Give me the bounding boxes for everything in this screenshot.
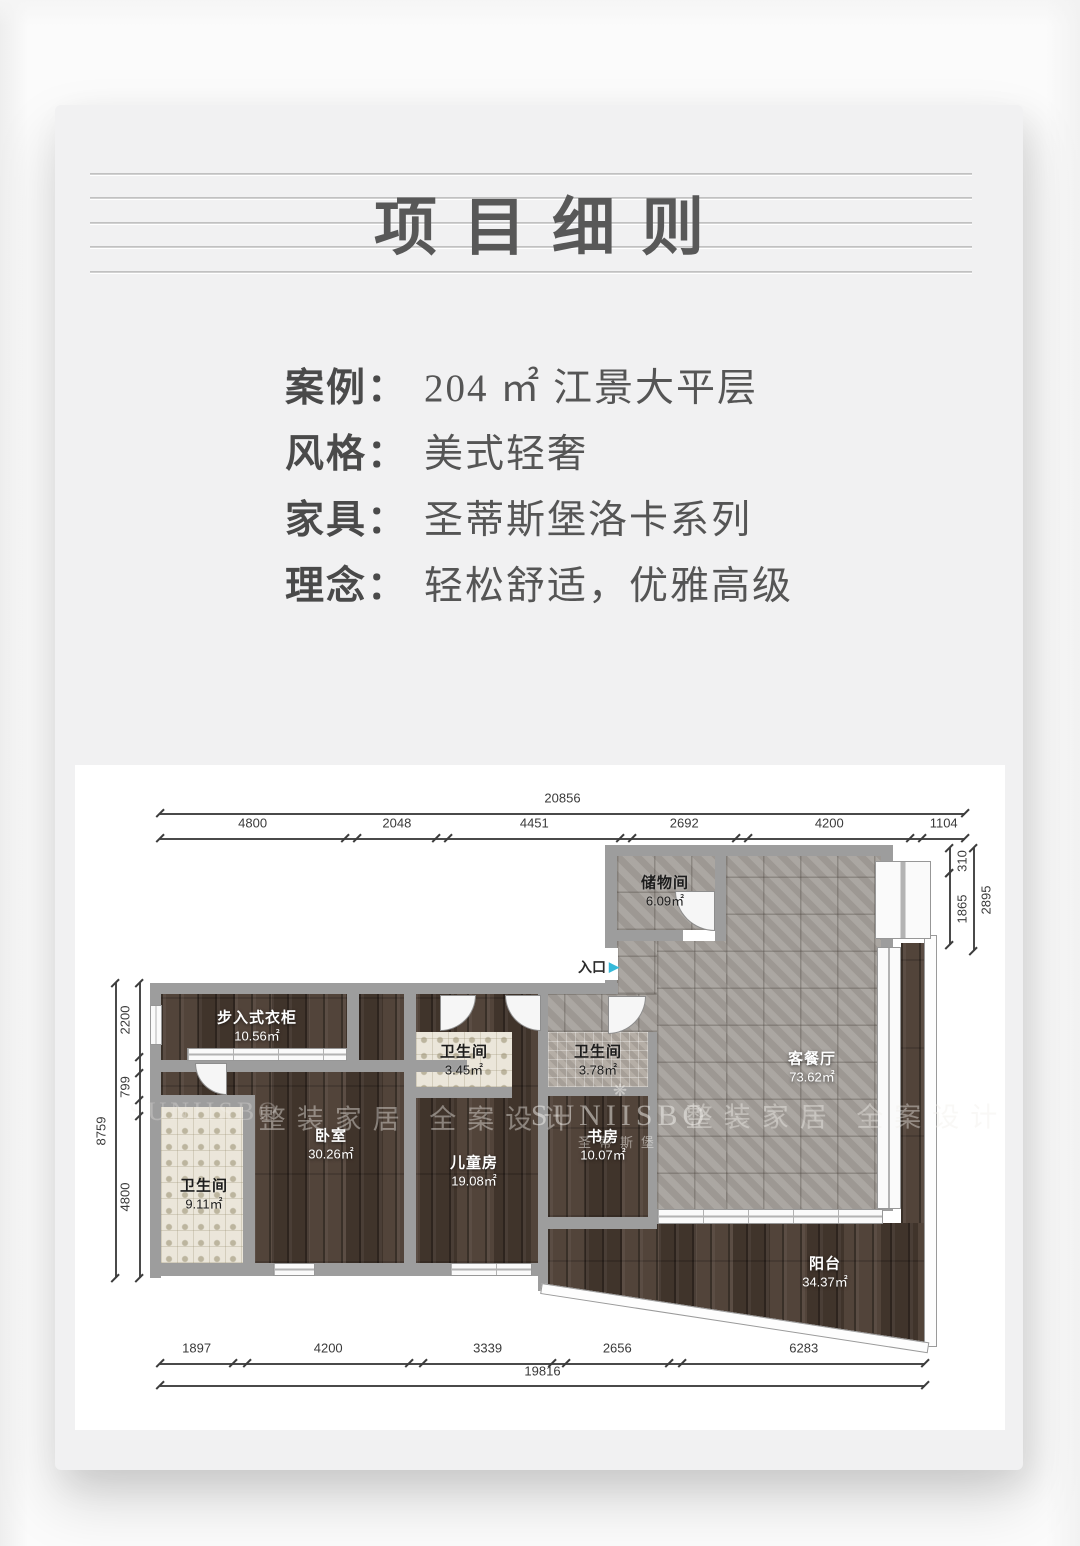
info-value: 204 ㎡ 江景大平层 xyxy=(424,357,758,413)
dim-label: 19816 xyxy=(524,1364,560,1379)
info-row-case: 案例： 204 ㎡ 江景大平层 xyxy=(285,357,793,423)
dimension-annotations: 2085648002048445126924200110418974200333… xyxy=(75,765,1005,1430)
dim-label: 3339 xyxy=(473,1341,502,1356)
info-row-concept: 理念： 轻松舒适，优雅高级 xyxy=(285,555,793,621)
dim-label: 8759 xyxy=(94,1116,109,1145)
info-row-furniture: 家具： 圣蒂斯堡洛卡系列 xyxy=(285,489,793,555)
dim-label: 1865 xyxy=(955,895,970,924)
dim-label: 4200 xyxy=(314,1341,343,1356)
dim-label: 2200 xyxy=(118,1006,133,1035)
dim-label: 2692 xyxy=(670,816,699,831)
project-card: 项目细则 案例： 204 ㎡ 江景大平层 风格： 美式轻奢 家具： 圣蒂斯堡洛卡… xyxy=(55,105,1023,1470)
dim-label: 20856 xyxy=(544,791,580,806)
info-label: 案例： xyxy=(285,357,408,413)
dim-label: 799 xyxy=(118,1076,133,1098)
page-title: 项目细则 xyxy=(55,177,1023,268)
title-rule-line xyxy=(90,173,972,176)
dim-label: 4200 xyxy=(815,816,844,831)
dim-label: 4800 xyxy=(238,816,267,831)
info-label: 家具： xyxy=(285,489,408,545)
info-row-style: 风格： 美式轻奢 xyxy=(285,423,793,489)
dim-label: 4800 xyxy=(118,1183,133,1212)
dim-label: 2895 xyxy=(979,885,994,914)
title-rule-line xyxy=(90,271,972,274)
dim-label: 2656 xyxy=(603,1341,632,1356)
dim-label: 2048 xyxy=(382,816,411,831)
project-info: 案例： 204 ㎡ 江景大平层 风格： 美式轻奢 家具： 圣蒂斯堡洛卡系列 理念… xyxy=(285,357,793,621)
info-label: 理念： xyxy=(285,555,408,611)
dim-label: 310 xyxy=(955,850,970,872)
info-label: 风格： xyxy=(285,423,408,479)
dim-label: 6283 xyxy=(789,1341,818,1356)
dim-label: 1104 xyxy=(930,816,958,831)
info-value: 美式轻奢 xyxy=(424,423,588,479)
page-background: 项目细则 案例： 204 ㎡ 江景大平层 风格： 美式轻奢 家具： 圣蒂斯堡洛卡… xyxy=(0,0,1080,1546)
info-value: 圣蒂斯堡洛卡系列 xyxy=(424,489,752,545)
dim-label: 1897 xyxy=(182,1341,211,1356)
floor-plan: 储物间 6.09㎡ 客餐厅 73.62㎡ 卫生间 3.45㎡ 卫生间 3.78㎡… xyxy=(75,765,1005,1430)
dim-label: 4451 xyxy=(520,816,549,831)
info-value: 轻松舒适，优雅高级 xyxy=(424,555,793,611)
